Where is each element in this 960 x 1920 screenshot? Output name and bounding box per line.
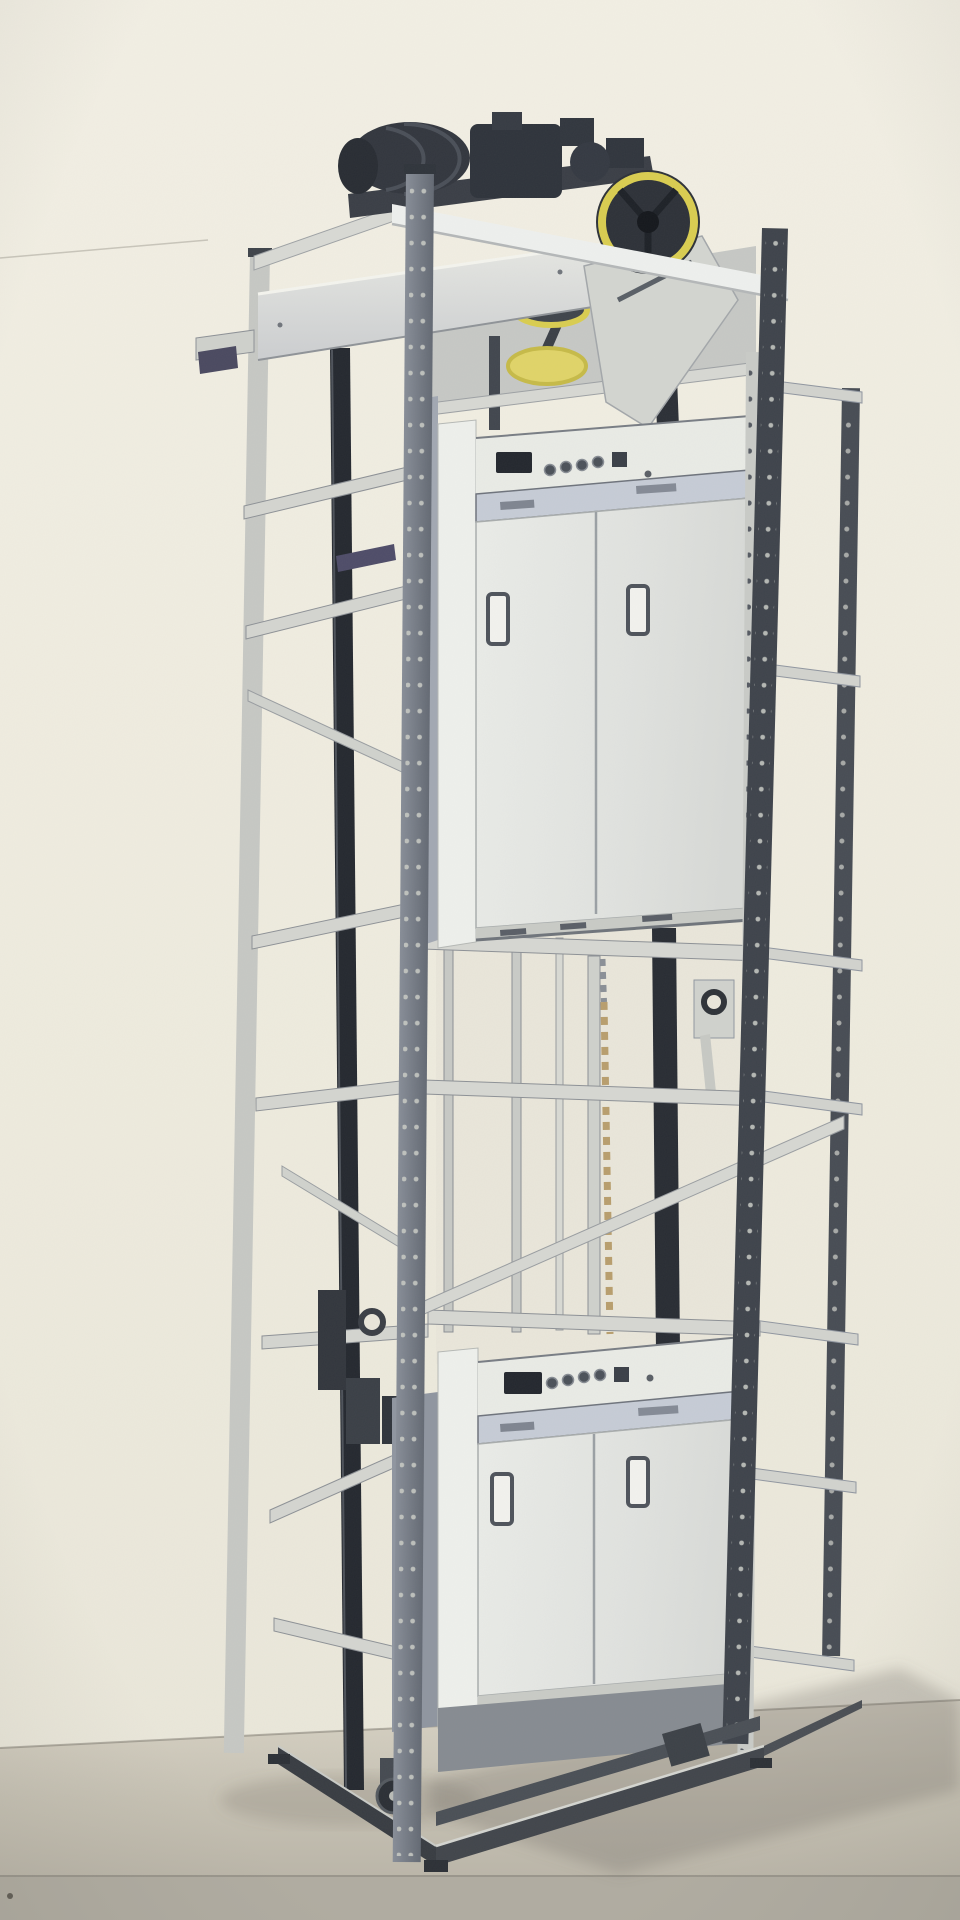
photo-canvas: Dumbwaiter service lift with two stacked… xyxy=(0,0,960,1920)
lift-photo: Dumbwaiter service lift with two stacked… xyxy=(0,0,960,1920)
vignette xyxy=(0,0,960,1920)
